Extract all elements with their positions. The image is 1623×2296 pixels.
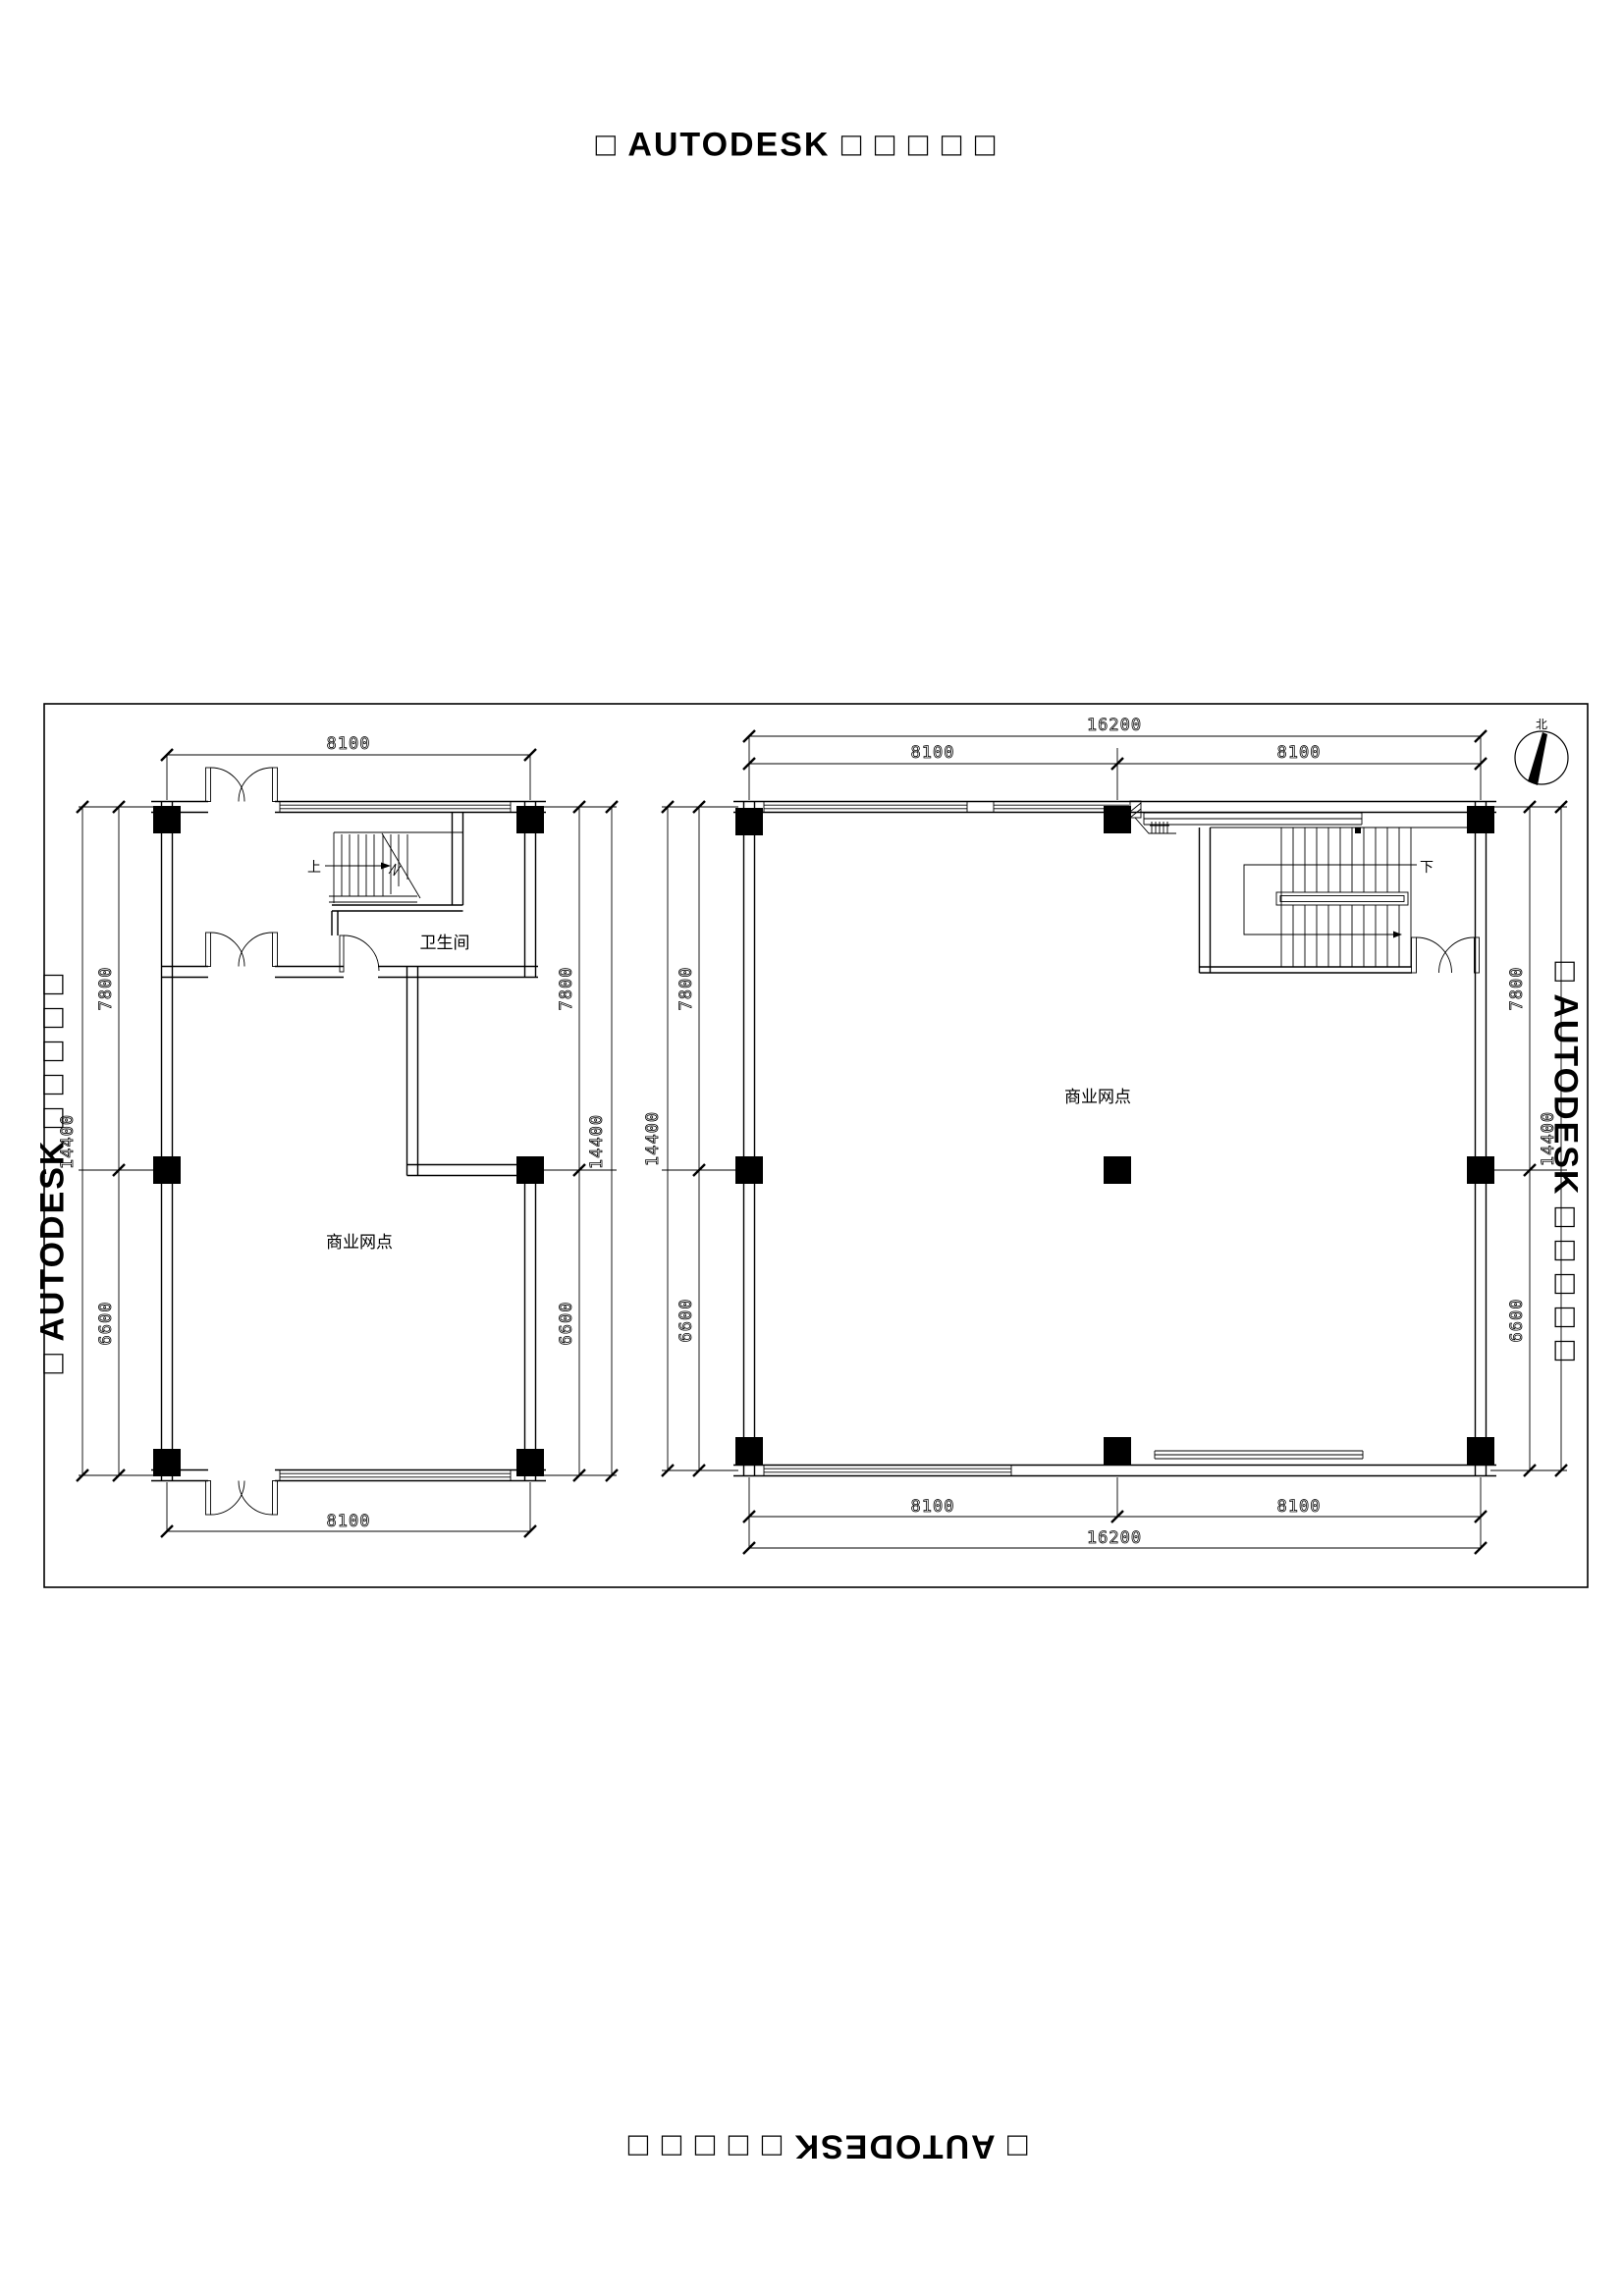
right-plan-walls — [733, 802, 1496, 1476]
stair-up-arrow — [381, 863, 391, 870]
left-bathroom-label: 卫生间 — [420, 934, 470, 953]
right-plan-dim-bottom-left: 8100 — [911, 1497, 955, 1517]
floor-plan-drawing: 上 — [0, 0, 1623, 2296]
stair-up-label: 上 — [307, 860, 321, 876]
right-plan-dim-top-left: 8100 — [911, 743, 955, 763]
right-plan-dim-left-lower: 6600 — [676, 1299, 696, 1343]
left-plan-dim-top: 8100 — [327, 734, 371, 754]
right-plan-dim-left-total: 14400 — [643, 1111, 663, 1166]
right-plan-dimensions: 16200 8100 8100 8100 8100 16200 7800 660… — [643, 716, 1567, 1554]
right-plan-dim-right-upper: 7800 — [1507, 967, 1527, 1011]
right-plan-labels: 商业网点 — [1064, 1088, 1131, 1107]
right-room-label: 商业网点 — [1064, 1088, 1131, 1107]
right-plan-dim-right-total: 14400 — [1539, 1111, 1558, 1166]
right-plan-dim-top-total: 16200 — [1087, 716, 1142, 735]
left-plan-stairs: 上 — [307, 832, 462, 903]
left-room-label: 商业网点 — [326, 1233, 393, 1253]
left-plan-dim-bottom: 8100 — [327, 1512, 371, 1531]
right-plan-dim-bottom-right: 8100 — [1277, 1497, 1322, 1517]
left-plan-dim-left-lower: 6600 — [96, 1302, 116, 1346]
left-plan-doors — [206, 768, 380, 1515]
duct-shaft — [1130, 801, 1176, 833]
right-plan-stairs: 下 — [1244, 828, 1434, 967]
drawing-page: □ AUTODESK □ □ □ □ □ □ AUTODESK □ □ □ □ … — [0, 0, 1623, 2296]
right-plan-dim-top-right: 8100 — [1277, 743, 1322, 763]
left-plan-dim-right-upper: 7800 — [557, 967, 576, 1011]
right-plan-doors — [1412, 937, 1480, 973]
north-compass: 北 — [1515, 718, 1568, 785]
left-plan-columns — [153, 806, 544, 1476]
left-plan-labels: 商业网点 卫生间 — [326, 934, 470, 1253]
right-plan: 下 — [643, 716, 1567, 1554]
north-label: 北 — [1536, 718, 1547, 731]
left-plan: 上 — [58, 734, 618, 1537]
right-plan-dim-left-upper: 7800 — [676, 967, 696, 1011]
north-needle — [1528, 732, 1547, 785]
left-plan-dim-left-upper: 7800 — [96, 967, 116, 1011]
right-plan-dim-bottom-total: 16200 — [1087, 1528, 1142, 1548]
left-plan-dim-right-total: 14400 — [587, 1114, 607, 1169]
stair-down-arrow — [1393, 932, 1402, 938]
left-plan-dim-left-total: 14400 — [58, 1114, 78, 1169]
left-plan-dim-right-lower: 6600 — [557, 1302, 576, 1346]
stair-down-label: 下 — [1420, 860, 1434, 876]
right-plan-dim-right-lower: 6600 — [1507, 1299, 1527, 1343]
left-plan-walls — [151, 802, 546, 1481]
left-plan-dimensions: 8100 8100 7800 6600 14400 7800 6600 1440… — [58, 734, 618, 1537]
